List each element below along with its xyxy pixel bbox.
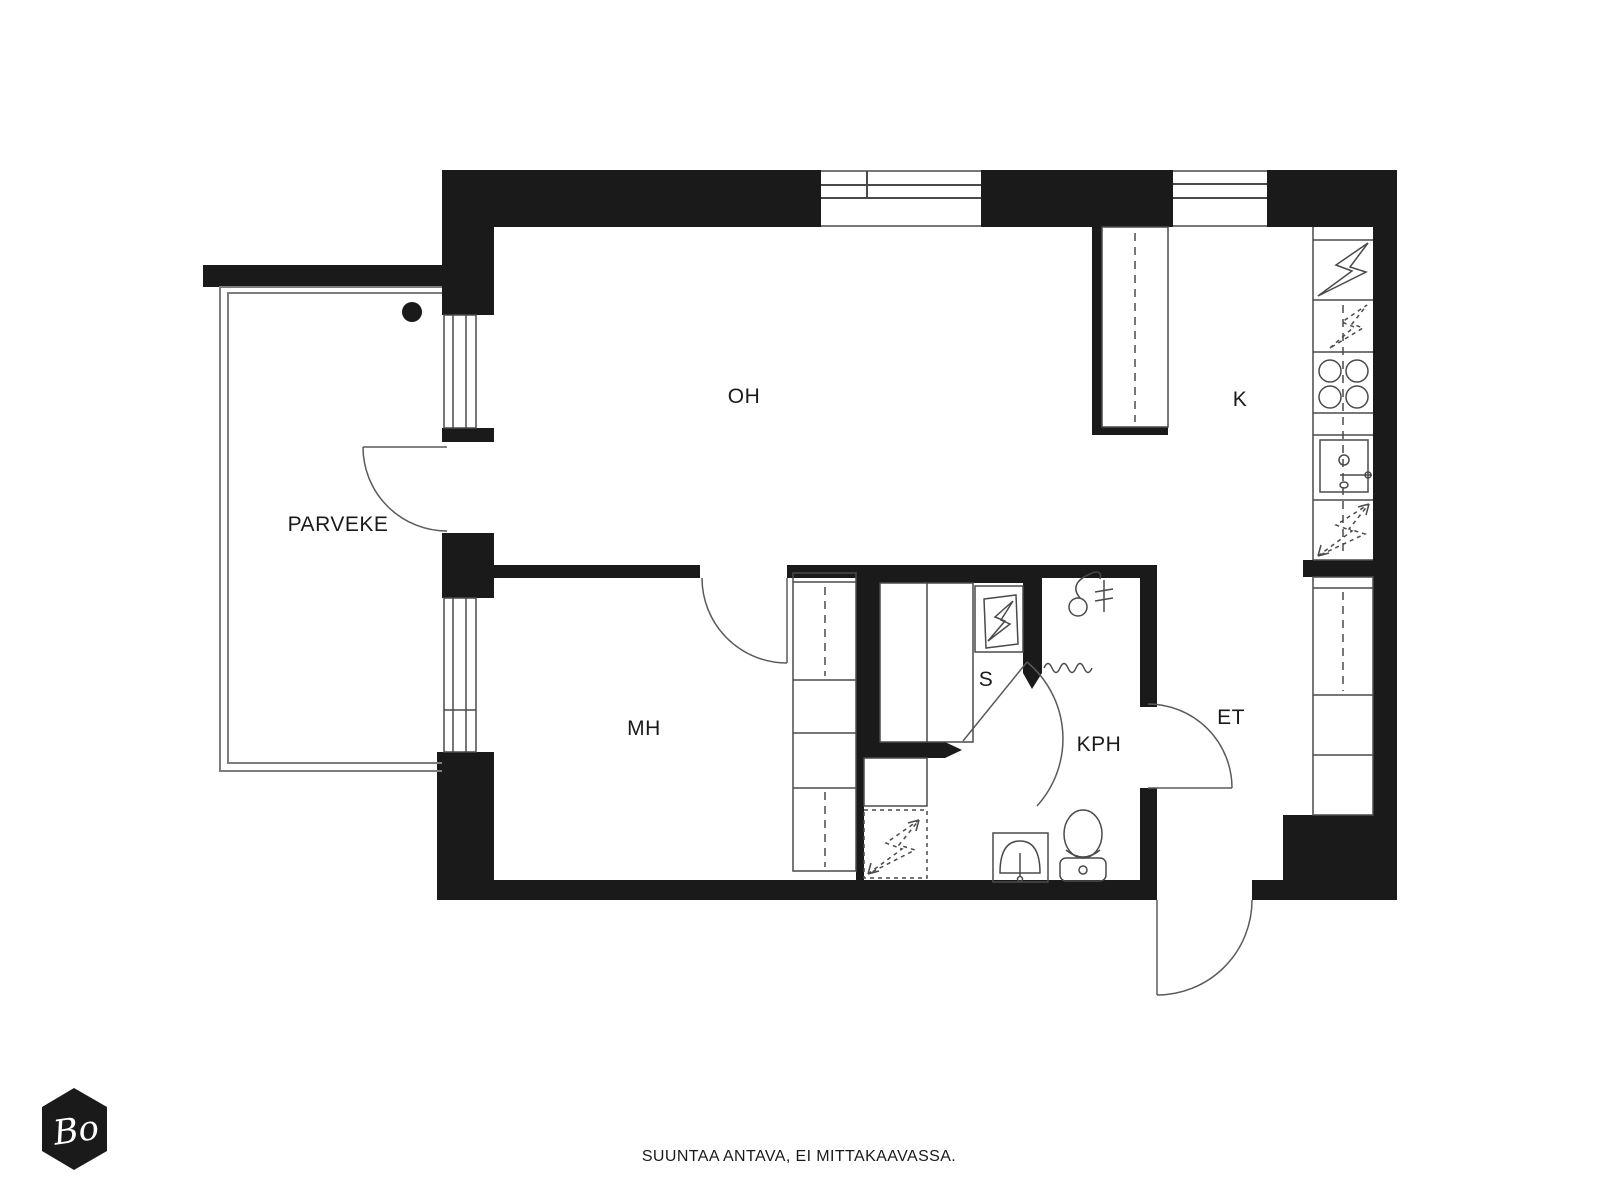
bedroom-closets <box>793 573 856 871</box>
shower-icon <box>1069 572 1113 616</box>
interior-walls <box>494 227 1373 880</box>
fridge-lightning-icon <box>1318 243 1368 296</box>
room-label-living: OH <box>728 385 761 408</box>
bathroom-fixtures <box>864 572 1113 882</box>
kitchen-sink-icon <box>1320 440 1372 492</box>
logo-text: Bo <box>50 1108 102 1154</box>
room-label-kitchen: K <box>1233 388 1248 411</box>
room-label-sauna: S <box>979 668 994 691</box>
sauna-bottom-wall <box>856 742 962 758</box>
disclaimer-text: SUUNTAA ANTAVA, EI MITTAKAAVASSA. <box>642 1148 956 1165</box>
entrance-door <box>1157 900 1252 995</box>
window-living-room <box>821 171 981 226</box>
balcony-column <box>402 302 422 322</box>
window-bedroom <box>444 598 476 752</box>
room-label-bedroom: MH <box>627 717 661 740</box>
window-balcony-living <box>444 315 476 428</box>
floor-plan-page: OH K PARVEKE MH S KPH ET SUUNTAA ANTAVA,… <box>0 0 1600 1200</box>
towel-radiator-icon <box>1044 664 1092 673</box>
room-label-bathroom: KPH <box>1077 733 1122 756</box>
bo-logo: Bo <box>42 1088 107 1170</box>
hallway-closets <box>1313 577 1373 815</box>
washer-reservation-icon <box>864 810 927 878</box>
bedroom-door <box>702 578 787 663</box>
kitchen-tall-cabinet <box>1102 227 1168 427</box>
utility-cabinet <box>864 758 927 806</box>
room-label-hallway: ET <box>1217 706 1245 729</box>
sauna-bathroom-wall <box>1023 565 1042 689</box>
sauna-stove-icon <box>975 586 1023 652</box>
washbasin-icon <box>993 833 1048 882</box>
kitchen-counter <box>1313 227 1373 560</box>
sauna-fixtures <box>880 583 1023 742</box>
room-label-balcony: PARVEKE <box>288 513 389 536</box>
toilet-icon <box>1060 810 1106 881</box>
dishwasher-reservation-icon <box>1330 305 1367 348</box>
window-kitchen <box>1173 171 1267 226</box>
floor-plan-drawing: OH K PARVEKE MH S KPH ET SUUNTAA ANTAVA,… <box>0 0 1600 1200</box>
doors <box>363 447 1252 995</box>
